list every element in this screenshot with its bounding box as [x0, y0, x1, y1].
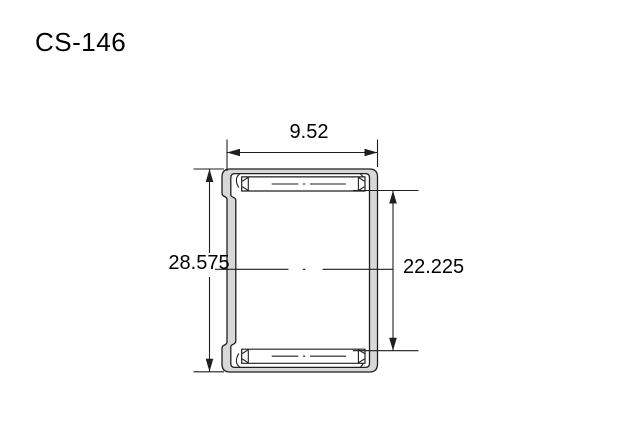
bearing-shell-outline: [222, 169, 378, 372]
arrowhead-right-icon: [365, 149, 378, 157]
drawing-canvas: CS-146: [0, 0, 640, 440]
bottom-needle-roller: [242, 349, 365, 363]
shell-lip-curls: [236, 174, 363, 366]
lip-curl-top-left: [236, 174, 239, 187]
lip-curl-bottom-left: [236, 353, 239, 366]
outer-height-dimension-label: 28.575: [168, 252, 229, 274]
arrowhead-left-icon: [227, 149, 240, 157]
outer-height-dimension: 28.575: [168, 169, 229, 372]
width-dimension-label: 9.52: [290, 121, 329, 143]
arrowhead-up-icon: [206, 169, 214, 182]
top-needle-roller: [242, 177, 365, 191]
arrowhead-down-icon: [389, 338, 397, 351]
bore-height-dimension-label: 22.225: [403, 256, 464, 278]
arrowhead-down-icon: [206, 359, 214, 372]
bearing-cross-section-drawing: 9.52 28.575 22.225: [0, 0, 640, 440]
arrowhead-up-icon: [389, 191, 397, 204]
width-extension-lines: [227, 140, 378, 172]
width-dimension: 9.52: [227, 121, 378, 171]
